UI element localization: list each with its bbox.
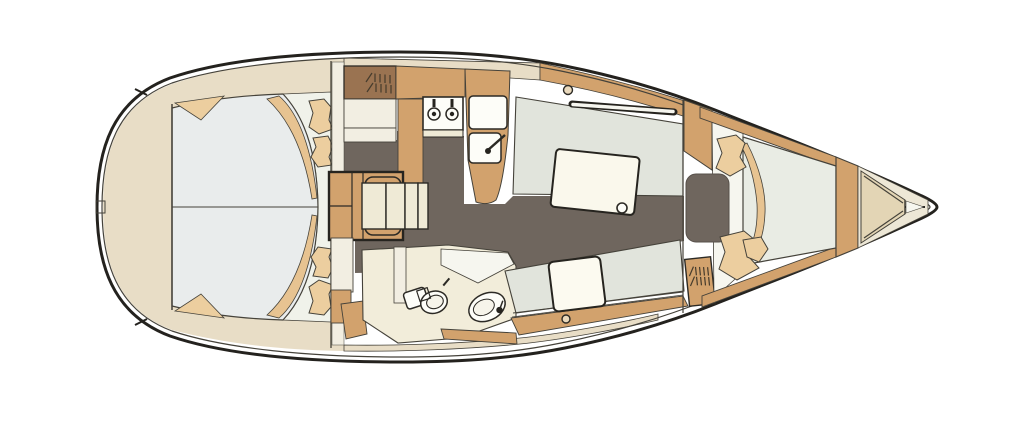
step-tread xyxy=(405,183,418,229)
stove-unit xyxy=(423,97,463,130)
galley-counter xyxy=(396,66,465,99)
step-tread xyxy=(362,183,386,229)
oven-front xyxy=(423,130,463,137)
wardrobe-base xyxy=(344,128,396,142)
pillow xyxy=(311,247,333,278)
step-tread xyxy=(386,183,405,229)
cabinet-ivory xyxy=(331,238,353,292)
forward-bulkhead xyxy=(836,157,858,257)
faucet-base xyxy=(485,148,491,154)
sink-basin xyxy=(469,133,501,163)
step-tread xyxy=(418,183,428,229)
cabin-entry-sole xyxy=(686,174,729,242)
stove-burner-center xyxy=(450,112,454,116)
deck-hatch-icon xyxy=(564,86,573,95)
wardrobe-locker xyxy=(344,66,396,99)
pillow xyxy=(311,136,333,167)
yacht-floor-plan: Sailing yacht interior layout floor plan… xyxy=(0,0,1024,422)
floor-plan-page: Sailing yacht interior layout floor plan… xyxy=(0,0,1024,422)
table-leg xyxy=(617,203,627,213)
stove-burner-center xyxy=(432,112,436,116)
forward-cabin xyxy=(683,100,928,313)
seat-cushion xyxy=(548,256,606,312)
shelf-hatch-icon xyxy=(562,315,570,323)
wardrobe-front xyxy=(344,99,396,128)
sink-basin xyxy=(469,96,507,129)
